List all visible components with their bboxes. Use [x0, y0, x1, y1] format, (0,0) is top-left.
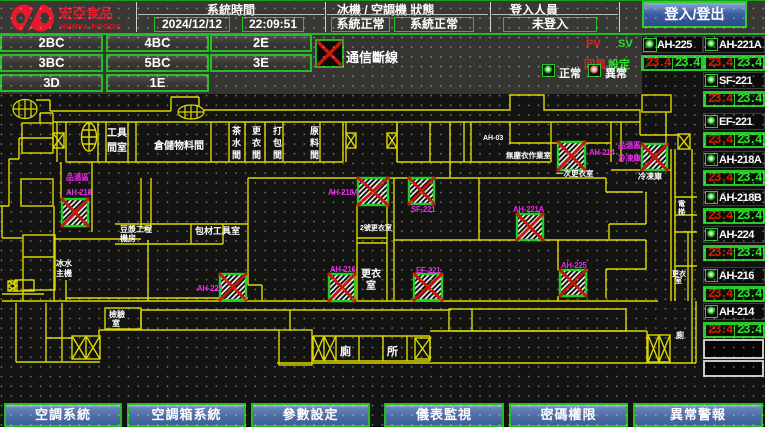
svg-text:無塵衣作業室: 無塵衣作業室: [506, 150, 551, 160]
svg-text:茶: 茶: [231, 125, 242, 136]
svg-text:主機: 主機: [56, 268, 72, 278]
svg-text:冷凍庫: 冷凍庫: [638, 171, 662, 181]
svg-text:更: 更: [252, 126, 262, 136]
svg-text:AH-224: AH-224: [197, 284, 224, 293]
svg-text:包材工具室: 包材工具室: [194, 225, 240, 236]
svg-text:廁: 廁: [676, 330, 684, 340]
svg-text:一次更衣室: 一次更衣室: [556, 168, 594, 178]
svg-text:工具: 工具: [107, 127, 127, 139]
svg-text:梯: 梯: [678, 207, 685, 216]
svg-text:原: 原: [310, 126, 319, 136]
svg-text:打: 打: [273, 125, 282, 136]
svg-text:間: 間: [310, 150, 319, 160]
svg-text:EF-221: EF-221: [416, 266, 441, 275]
svg-text:電: 電: [678, 199, 685, 208]
svg-text:廁: 廁: [340, 344, 351, 358]
svg-text:間: 間: [232, 150, 241, 160]
svg-text:SF-221: SF-221: [411, 205, 436, 214]
svg-text:水: 水: [232, 137, 242, 148]
svg-text:AH-218A: AH-218A: [328, 188, 360, 197]
svg-text:更衣: 更衣: [672, 269, 687, 278]
svg-text:冷凍庫: 冷凍庫: [618, 153, 641, 163]
svg-text:更衣: 更衣: [361, 267, 381, 280]
svg-text:2號更衣室: 2號更衣室: [360, 223, 392, 232]
svg-text:冰水: 冰水: [56, 258, 73, 268]
svg-text:AH-221A: AH-221A: [513, 205, 545, 214]
svg-text:AH-03: AH-03: [483, 135, 503, 142]
svg-text:室: 室: [366, 279, 376, 292]
svg-text:AH-225: AH-225: [561, 261, 588, 270]
svg-text:間: 間: [273, 150, 282, 160]
svg-text:包: 包: [272, 137, 282, 148]
svg-text:間室: 間室: [107, 141, 127, 154]
svg-text:室: 室: [675, 276, 682, 285]
svg-text:室: 室: [112, 318, 120, 328]
svg-text:AH-214: AH-214: [589, 148, 616, 157]
svg-text:檢驗: 檢驗: [109, 309, 125, 319]
svg-text:料: 料: [310, 137, 319, 148]
svg-text:品溫區: 品溫區: [618, 140, 641, 150]
svg-text:豆漿工程: 豆漿工程: [120, 224, 152, 234]
svg-text:間: 間: [252, 150, 261, 160]
svg-text:倉儲物料間: 倉儲物料間: [153, 139, 204, 152]
svg-text:機房: 機房: [120, 233, 136, 243]
svg-text:AH-216: AH-216: [330, 265, 357, 274]
svg-text:衣: 衣: [252, 137, 261, 148]
svg-text:所: 所: [387, 344, 398, 358]
svg-text:品溫區: 品溫區: [66, 172, 89, 182]
svg-text:AH-218: AH-218: [66, 188, 93, 197]
